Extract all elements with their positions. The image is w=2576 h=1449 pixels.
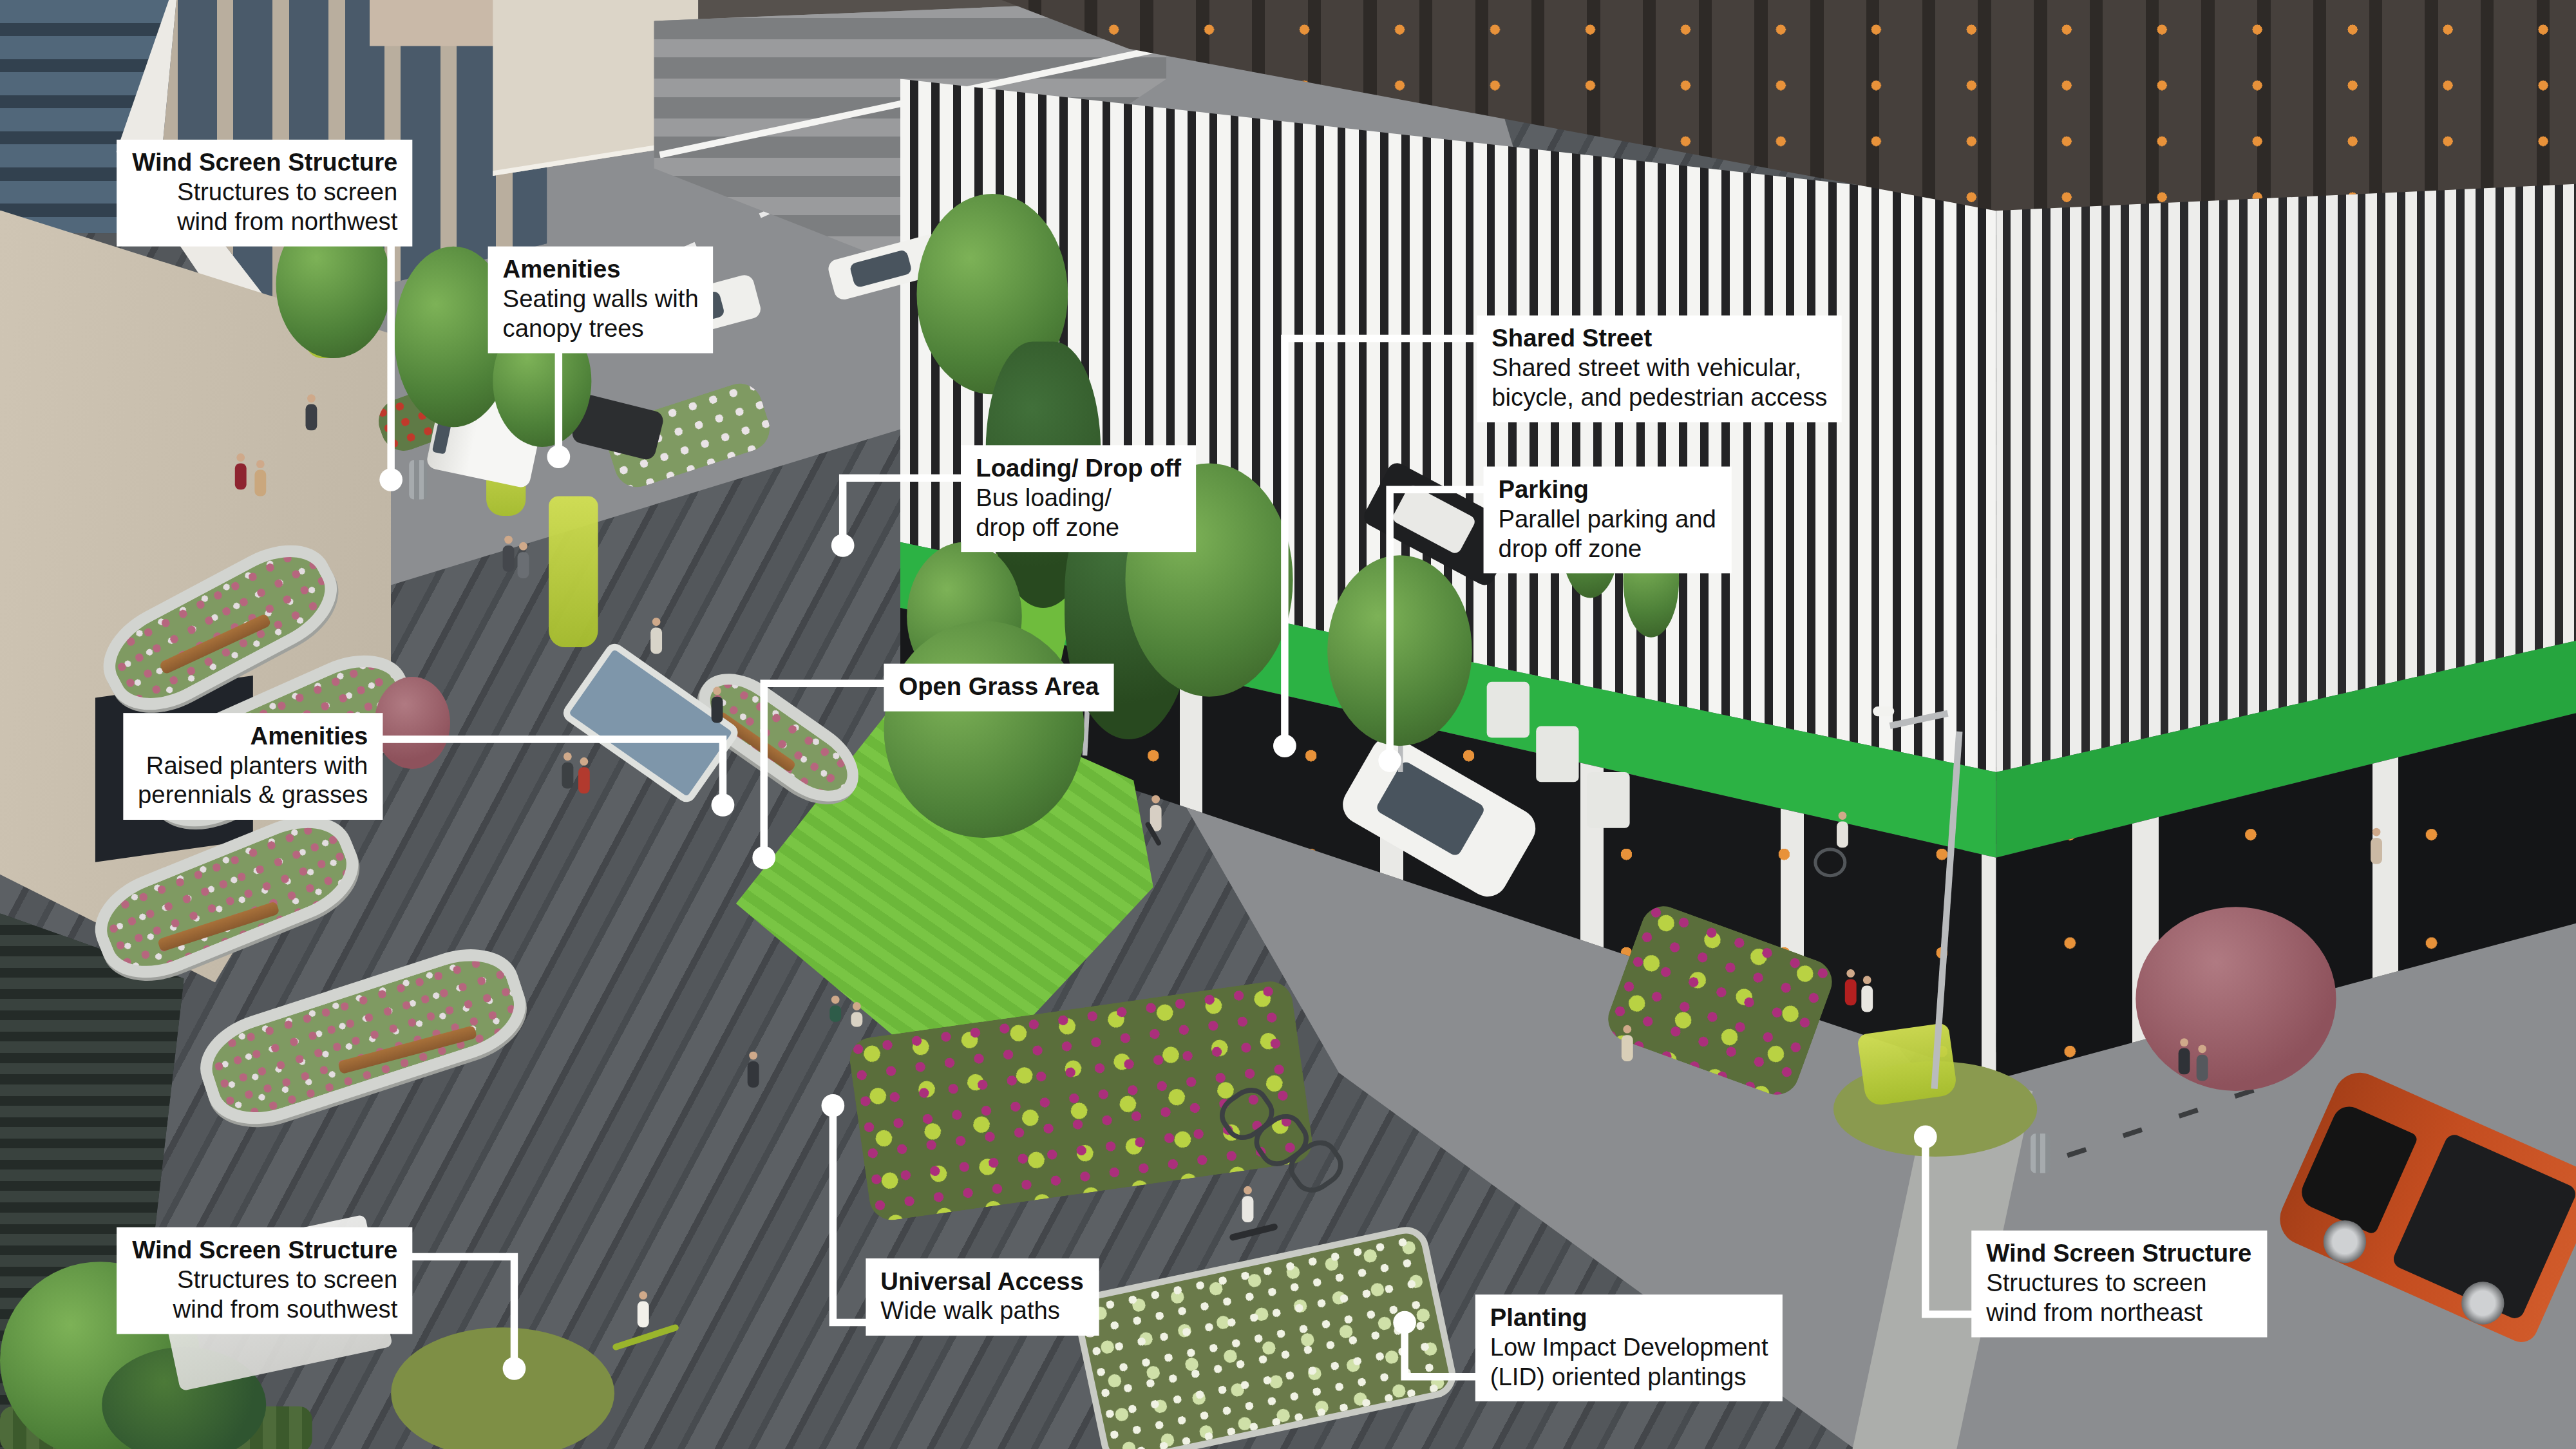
callout-title: Amenities	[138, 721, 368, 751]
callout-title: Planting	[1490, 1303, 1768, 1332]
callout-line: Wide walk paths	[880, 1296, 1084, 1326]
callout-wind-screen-sw: Wind Screen Structure Structures to scre…	[117, 1227, 412, 1334]
callout-universal-access: Universal Access Wide walk paths	[866, 1258, 1098, 1336]
rendering-canvas: Wind Screen Structure Structures to scre…	[0, 0, 2576, 1449]
callout-title: Amenities	[503, 254, 699, 284]
callout-wind-screen-nw: Wind Screen Structure Structures to scre…	[117, 140, 412, 247]
leader-wind-screen-nw	[379, 227, 402, 491]
leader-universal-access	[822, 1094, 869, 1323]
callout-line: wind from northeast	[1986, 1298, 2251, 1327]
callout-title: Loading/ Drop off	[976, 453, 1181, 483]
callout-shared-street: Shared Street Shared street with vehicul…	[1477, 316, 1842, 422]
callout-line: Seating walls with	[503, 284, 699, 314]
callout-wind-screen-ne: Wind Screen Structure Structures to scre…	[1971, 1231, 2266, 1338]
callout-title: Wind Screen Structure	[132, 148, 397, 178]
callout-line: Bus loading/	[976, 483, 1181, 513]
callout-planting: Planting Low Impact Development (LID) or…	[1475, 1294, 1783, 1401]
leader-planting	[1393, 1311, 1479, 1377]
callout-line: bicycle, and pedestrian access	[1492, 383, 1827, 412]
callout-line: drop off zone	[1499, 534, 1716, 563]
callout-line: Low Impact Development	[1490, 1332, 1768, 1362]
callout-line: Parallel parking and	[1499, 504, 1716, 534]
leader-wind-screen-ne	[1914, 1125, 1975, 1314]
callout-line: Structures to screen	[132, 178, 397, 207]
callout-amenities-planters: Amenities Raised planters with perennial…	[123, 713, 383, 820]
callout-line: canopy trees	[503, 314, 699, 343]
callout-line: wind from northwest	[132, 207, 397, 236]
callout-line: wind from southwest	[132, 1294, 397, 1324]
callout-title: Wind Screen Structure	[132, 1235, 397, 1265]
callout-line: (LID) oriented plantings	[1490, 1362, 1768, 1392]
callout-loading-drop-off: Loading/ Drop off Bus loading/ drop off …	[961, 445, 1196, 552]
callout-open-grass-area: Open Grass Area	[884, 664, 1113, 712]
leader-parking	[1378, 489, 1486, 772]
leader-open-grass-area	[752, 683, 887, 869]
callout-title: Wind Screen Structure	[1986, 1238, 2251, 1268]
callout-line: drop off zone	[976, 513, 1181, 542]
callout-title: Parking	[1499, 475, 1716, 504]
leader-amenities-planters	[379, 739, 734, 817]
callout-parking: Parking Parallel parking and drop off zo…	[1484, 466, 1731, 573]
leader-loading-drop-off	[831, 478, 965, 556]
callout-title: Open Grass Area	[898, 672, 1099, 701]
callout-line: Shared street with vehicular,	[1492, 353, 1827, 383]
callout-title: Universal Access	[880, 1267, 1084, 1296]
leader-amenities-seating	[547, 342, 570, 468]
callout-line: perennials & grasses	[138, 781, 368, 810]
callout-line: Structures to screen	[1986, 1268, 2251, 1298]
streetscape-scene: Wind Screen Structure Structures to scre…	[0, 0, 2576, 1449]
leader-shared-street	[1273, 339, 1480, 758]
callout-title: Shared Street	[1492, 324, 1827, 354]
callout-line: Raised planters with	[138, 751, 368, 781]
leader-wind-screen-sw	[409, 1257, 526, 1380]
callout-line: Structures to screen	[132, 1265, 397, 1294]
callout-amenities-seating: Amenities Seating walls with canopy tree…	[488, 247, 714, 354]
